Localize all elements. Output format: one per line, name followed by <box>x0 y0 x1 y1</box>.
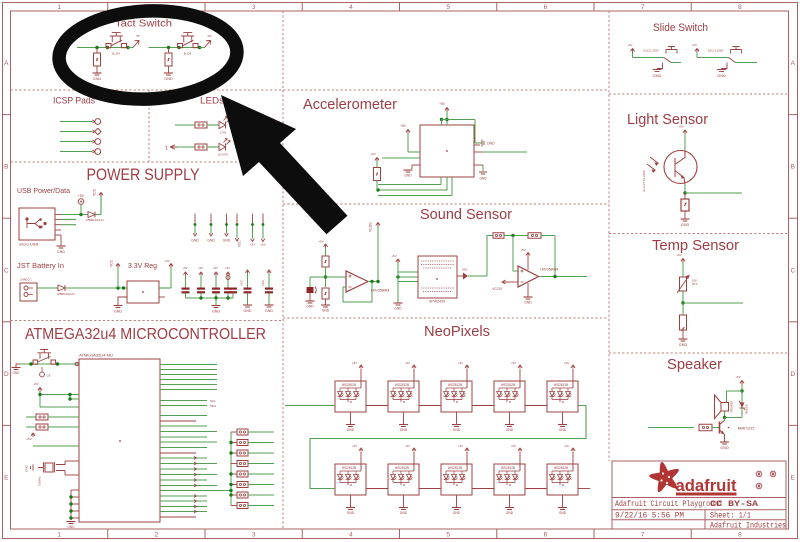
svg-text:Adafruit Industries: Adafruit Industries <box>710 522 786 531</box>
svg-text:GND: GND <box>506 428 514 432</box>
svg-text:+5V: +5V <box>352 444 357 448</box>
svg-text:2-MECC: 2-MECC <box>20 278 32 282</box>
svg-text:VCC: VCC <box>110 259 114 267</box>
svg-text:Sheet: 1/1: Sheet: 1/1 <box>710 512 751 521</box>
svg-text:Slide Switch: Slide Switch <box>653 22 708 34</box>
svg-text:+5V: +5V <box>511 361 516 365</box>
svg-text:wp: wp <box>208 34 212 38</box>
svg-text:L-R6: L-R6 <box>220 131 227 135</box>
svg-text:A: A <box>791 60 796 67</box>
svg-text:GND: GND <box>720 446 729 450</box>
svg-text:VCC: VCC <box>93 188 97 196</box>
svg-text:9/22/16 5:56 PM: 9/22/16 5:56 PM <box>615 512 684 521</box>
svg-text:S1C/1,2/S0: S1C/1,2/S0 <box>643 49 659 53</box>
svg-text:GND: GND <box>12 371 20 375</box>
svg-text:+5V: +5V <box>678 125 683 129</box>
svg-text:+5V: +5V <box>250 243 255 247</box>
svg-text:GND: GND <box>67 525 75 529</box>
svg-text:GND: GND <box>306 305 314 309</box>
svg-text:SPW2430: SPW2430 <box>429 300 445 304</box>
svg-text:B_D4: B_D4 <box>184 52 192 56</box>
svg-text:S1C/1,2/S0: S1C/1,2/S0 <box>708 49 724 53</box>
svg-text:SDA: SDA <box>210 404 216 408</box>
svg-text:GND: GND <box>679 343 688 347</box>
svg-text:+5V: +5V <box>164 259 169 263</box>
svg-text:+5V: +5V <box>564 444 569 448</box>
svg-text:WS2812B: WS2812B <box>501 383 515 387</box>
svg-text:2: 2 <box>155 532 159 539</box>
svg-text:Adafruit Circuit Playground: Adafruit Circuit Playground <box>615 500 722 509</box>
svg-text:JST Battery In: JST Battery In <box>17 263 64 270</box>
svg-text:GND: GND <box>322 309 330 313</box>
svg-text:A: A <box>4 60 9 67</box>
svg-text:B_D4: B_D4 <box>112 52 120 56</box>
svg-text:VCC: VCC <box>261 279 265 286</box>
svg-text:+5V: +5V <box>213 266 218 270</box>
svg-text:Sound Sensor: Sound Sensor <box>420 207 512 223</box>
svg-text:GND: GND <box>487 142 495 146</box>
svg-text:Temp Sensor: Temp Sensor <box>652 238 739 254</box>
svg-text:+5V: +5V <box>458 444 463 448</box>
svg-text:+5V: +5V <box>564 361 569 365</box>
svg-text:VCOS: VCOS <box>492 287 502 291</box>
svg-text:GND: GND <box>244 309 252 313</box>
svg-text:+5V: +5V <box>26 437 31 441</box>
svg-text:GND: GND <box>559 428 567 432</box>
svg-text:8: 8 <box>738 4 742 11</box>
svg-text:Accelerometer: Accelerometer <box>303 97 397 113</box>
svg-text:LMV358MM: LMV358MM <box>540 268 558 272</box>
svg-text:GND: GND <box>114 309 122 313</box>
svg-text:+5V: +5V <box>182 266 187 270</box>
svg-text:USB Power/Data: USB Power/Data <box>17 188 70 195</box>
svg-text:E: E <box>791 475 796 482</box>
svg-text:8: 8 <box>738 532 742 539</box>
svg-text:3.3V Reg: 3.3V Reg <box>128 263 157 270</box>
svg-text:GND: GND <box>191 239 199 243</box>
svg-text:+5V: +5V <box>405 444 410 448</box>
svg-text:GND: GND <box>404 173 412 177</box>
svg-text:4: 4 <box>349 532 353 539</box>
svg-text:GND: GND <box>453 511 461 515</box>
svg-text:GND: GND <box>347 511 355 515</box>
svg-text:VCC: VCC <box>240 279 244 286</box>
svg-text:6: 6 <box>544 4 548 11</box>
svg-text:adafruit: adafruit <box>676 476 737 495</box>
svg-text:LEDs: LEDs <box>200 96 224 107</box>
svg-text:5: 5 <box>446 4 450 11</box>
svg-text:D: D <box>790 371 795 378</box>
svg-text:wp: wp <box>136 34 140 38</box>
svg-text:GND: GND <box>681 223 690 227</box>
svg-text:C8: C8 <box>47 374 51 378</box>
svg-text:ALS-PT19-315C: ALS-PT19-315C <box>642 169 646 192</box>
svg-text:WS2812B: WS2812B <box>342 383 356 387</box>
svg-text:6: 6 <box>544 532 548 539</box>
svg-text:GND: GND <box>400 511 408 515</box>
svg-text:GND: GND <box>223 239 231 243</box>
svg-text:1: 1 <box>57 532 61 539</box>
svg-text:7: 7 <box>641 532 645 539</box>
svg-text:+5V: +5V <box>78 194 85 198</box>
svg-text:WS2812B: WS2812B <box>501 466 515 470</box>
svg-text:B: B <box>791 164 795 171</box>
svg-text:ATMEGA32u4 MICROCONTROLLER: ATMEGA32u4 MICROCONTROLLER <box>25 326 266 343</box>
svg-text:+5V: +5V <box>198 266 203 270</box>
svg-text:SCL: SCL <box>210 399 216 403</box>
svg-text:WS2812B: WS2812B <box>395 466 409 470</box>
svg-text:GND: GND <box>453 428 461 432</box>
svg-text:1: 1 <box>57 4 61 11</box>
svg-text:+5V: +5V <box>627 43 632 47</box>
svg-text:ICSP Pads: ICSP Pads <box>53 96 95 107</box>
svg-text:WS2812B: WS2812B <box>448 383 462 387</box>
svg-text:+5V: +5V <box>692 43 697 47</box>
svg-text:GND: GND <box>25 465 29 473</box>
svg-text:WS2812B: WS2812B <box>448 466 462 470</box>
svg-text:3: 3 <box>252 4 256 11</box>
svg-text:MBR120(1A): MBR120(1A) <box>86 218 103 222</box>
svg-text:GND: GND <box>93 77 102 81</box>
svg-text:1: 1 <box>165 146 168 152</box>
svg-text:GND: GND <box>717 74 726 78</box>
svg-text:3: 3 <box>252 532 256 539</box>
svg-text:C: C <box>4 267 9 274</box>
svg-text:MMBT2222: MMBT2222 <box>738 427 755 431</box>
svg-text:SPEAKER: SPEAKER <box>730 401 734 413</box>
svg-text:+5V: +5V <box>400 124 407 128</box>
svg-text:16MHz: 16MHz <box>38 476 42 486</box>
svg-text:Light Sensor: Light Sensor <box>627 112 708 128</box>
svg-text:+5V: +5V <box>370 152 375 156</box>
svg-text:MIC: MIC <box>462 268 468 272</box>
svg-text:+5V: +5V <box>33 382 38 386</box>
svg-text:D: D <box>4 371 9 378</box>
svg-text:4: 4 <box>349 4 353 11</box>
svg-text:GND: GND <box>207 239 215 243</box>
svg-text:GND: GND <box>265 309 273 313</box>
svg-text:micro USB: micro USB <box>19 242 38 247</box>
svg-text:C: C <box>790 267 795 274</box>
svg-text:+5V: +5V <box>676 253 681 257</box>
svg-text:E: E <box>4 475 9 482</box>
svg-text:D13-F5: D13-F5 <box>218 153 228 157</box>
svg-text:7: 7 <box>641 4 645 11</box>
svg-text:VCC: VCC <box>238 240 242 247</box>
svg-text:B: B <box>4 164 8 171</box>
svg-text:+5V: +5V <box>260 243 265 247</box>
svg-text:+5V: +5V <box>352 361 357 365</box>
svg-text:GND: GND <box>212 309 220 313</box>
svg-text:CC BY-SA: CC BY-SA <box>710 500 758 509</box>
svg-text:WS2812B: WS2812B <box>554 466 568 470</box>
svg-text:+5V: +5V <box>318 240 323 244</box>
svg-text:GND: GND <box>559 511 567 515</box>
svg-text:WS2812B: WS2812B <box>395 383 409 387</box>
svg-text:Speaker: Speaker <box>667 357 722 373</box>
svg-text:GND: GND <box>57 250 65 254</box>
svg-text:+5V: +5V <box>439 102 446 106</box>
svg-text:GND: GND <box>479 177 487 181</box>
svg-text:GND: GND <box>506 511 514 515</box>
svg-text:+5V: +5V <box>225 266 230 270</box>
svg-text:GND: GND <box>347 428 355 432</box>
svg-text:ATMEGA32U4-MU: ATMEGA32U4-MU <box>79 353 113 358</box>
svg-text:GND: GND <box>400 428 408 432</box>
svg-text:+5V: +5V <box>458 361 463 365</box>
svg-text:GND: GND <box>394 307 402 311</box>
svg-text:MBR120: MBR120 <box>745 403 749 414</box>
svg-text:POWER SUPPLY: POWER SUPPLY <box>87 165 200 184</box>
svg-text:+5V: +5V <box>520 248 525 252</box>
svg-text:GND: GND <box>524 301 532 305</box>
svg-text:+5V: +5V <box>735 375 740 379</box>
svg-text:WS2812B: WS2812B <box>554 383 568 387</box>
svg-text:+5V: +5V <box>391 254 396 258</box>
svg-text:LMV358MM: LMV358MM <box>371 289 389 293</box>
svg-text:MBR120(1A): MBR120(1A) <box>57 292 74 296</box>
svg-text:GND: GND <box>164 77 173 81</box>
svg-text:5: 5 <box>446 532 450 539</box>
svg-text:NeoPixels: NeoPixels <box>424 324 490 340</box>
svg-text:NTC: NTC <box>692 282 698 286</box>
svg-text:VCOS: VCOS <box>369 222 373 232</box>
svg-text:+5V: +5V <box>511 444 516 448</box>
svg-text:+5V: +5V <box>405 361 410 365</box>
svg-text:WS2812B: WS2812B <box>342 466 356 470</box>
svg-text:GND: GND <box>653 74 662 78</box>
